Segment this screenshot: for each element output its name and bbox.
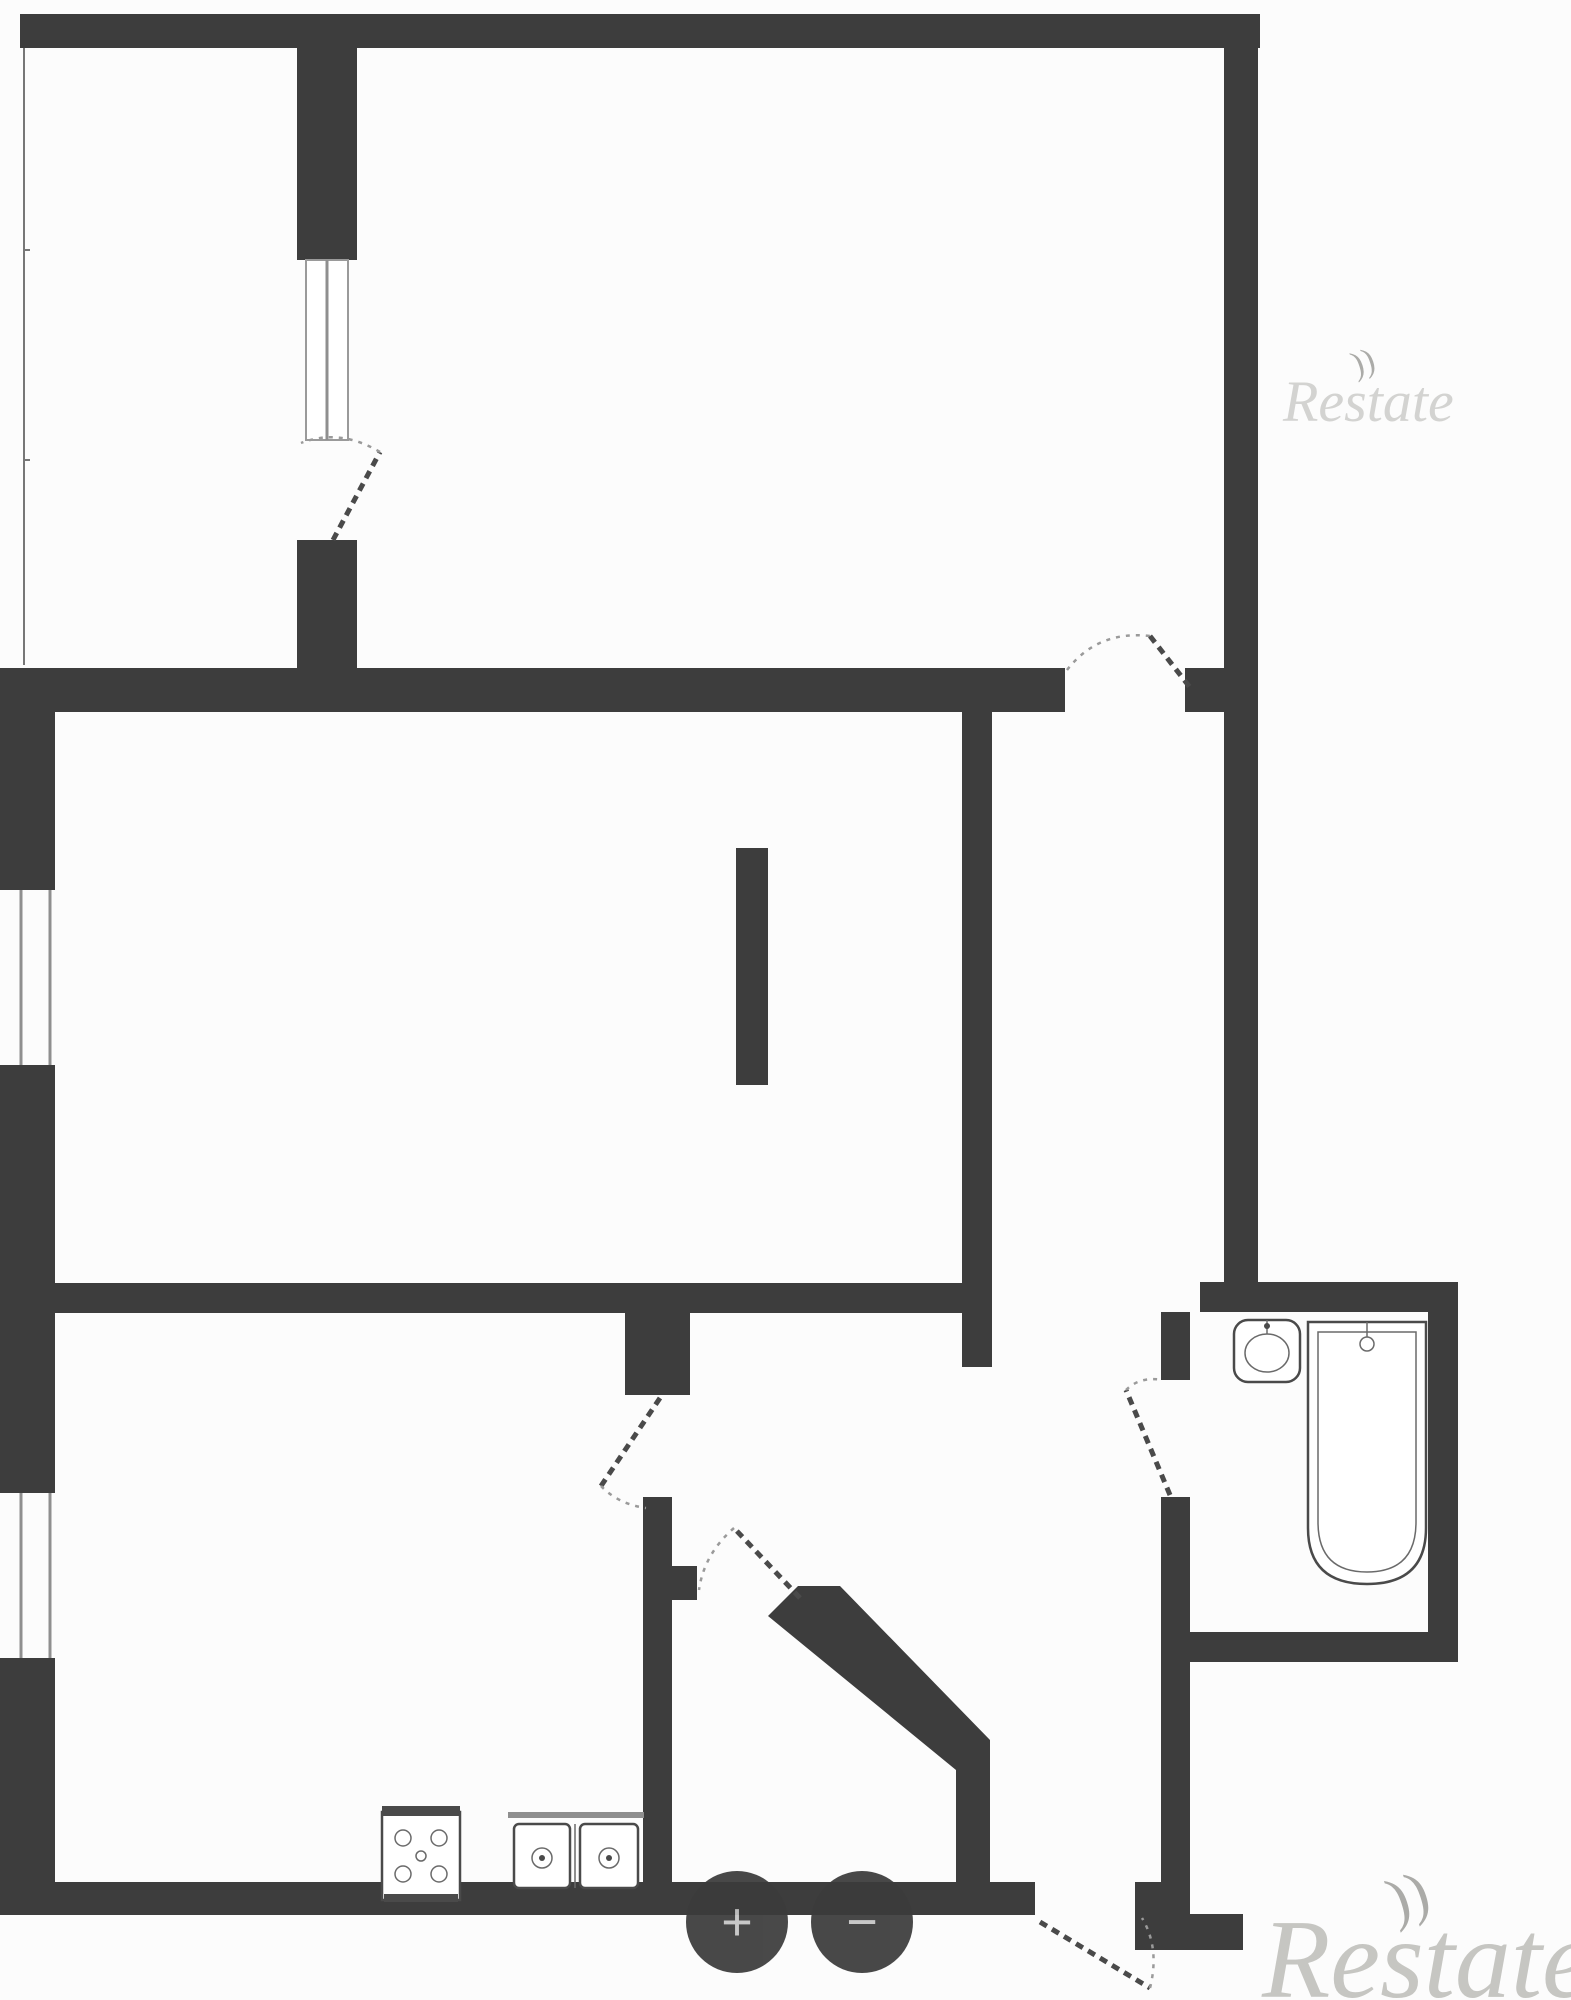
wall-bedroom-door-stub	[1185, 668, 1234, 712]
bathroom-sink-icon	[1234, 1320, 1300, 1382]
stove-icon	[382, 1806, 460, 1902]
wall-balcony-partition-bottom	[297, 540, 357, 670]
wall-bathroom-bottom	[1185, 1632, 1458, 1662]
room-storage-nook	[770, 715, 960, 1280]
floorplan-viewer: )) Restate )) Restate + −	[0, 0, 1571, 2000]
wall-bathroom-top	[1200, 1282, 1458, 1312]
room-balcony	[30, 50, 295, 665]
wall-left-upper	[0, 668, 55, 890]
wall-bathroom-right	[1428, 1282, 1458, 1662]
room-corridor	[994, 715, 1159, 1910]
wall-storage-divider	[736, 848, 768, 1085]
room-living-room	[58, 715, 733, 1280]
wall-kitchen-vertical	[643, 1497, 672, 1882]
wall-mid-horizontal	[0, 1283, 992, 1313]
zoom-out-button[interactable]: −	[811, 1871, 913, 1973]
wall-main-horizontal	[20, 668, 1065, 712]
wall-left-kitchen-upper	[0, 1313, 55, 1493]
wall-right	[1224, 14, 1258, 1296]
wall-hall-door-stub	[672, 1566, 697, 1600]
wall-balcony-partition-top	[297, 28, 357, 260]
room-kitchen	[58, 1316, 641, 1876]
wall-left-mid	[0, 1065, 55, 1283]
wall-corridor-right	[1161, 1497, 1190, 1915]
wall-top	[20, 14, 1260, 48]
wall-kitchen-door-stub	[625, 1313, 690, 1395]
zoom-in-button[interactable]: +	[686, 1871, 788, 1973]
rooms	[30, 50, 1426, 1910]
wall-left-kitchen-lower	[0, 1658, 55, 1884]
bathtub-icon	[1308, 1322, 1426, 1584]
wall-corridor-left	[962, 712, 992, 1367]
room-bedroom	[360, 50, 1220, 665]
wall-bathroom-left-upper	[1161, 1312, 1190, 1380]
floor-plan	[0, 0, 1571, 2000]
